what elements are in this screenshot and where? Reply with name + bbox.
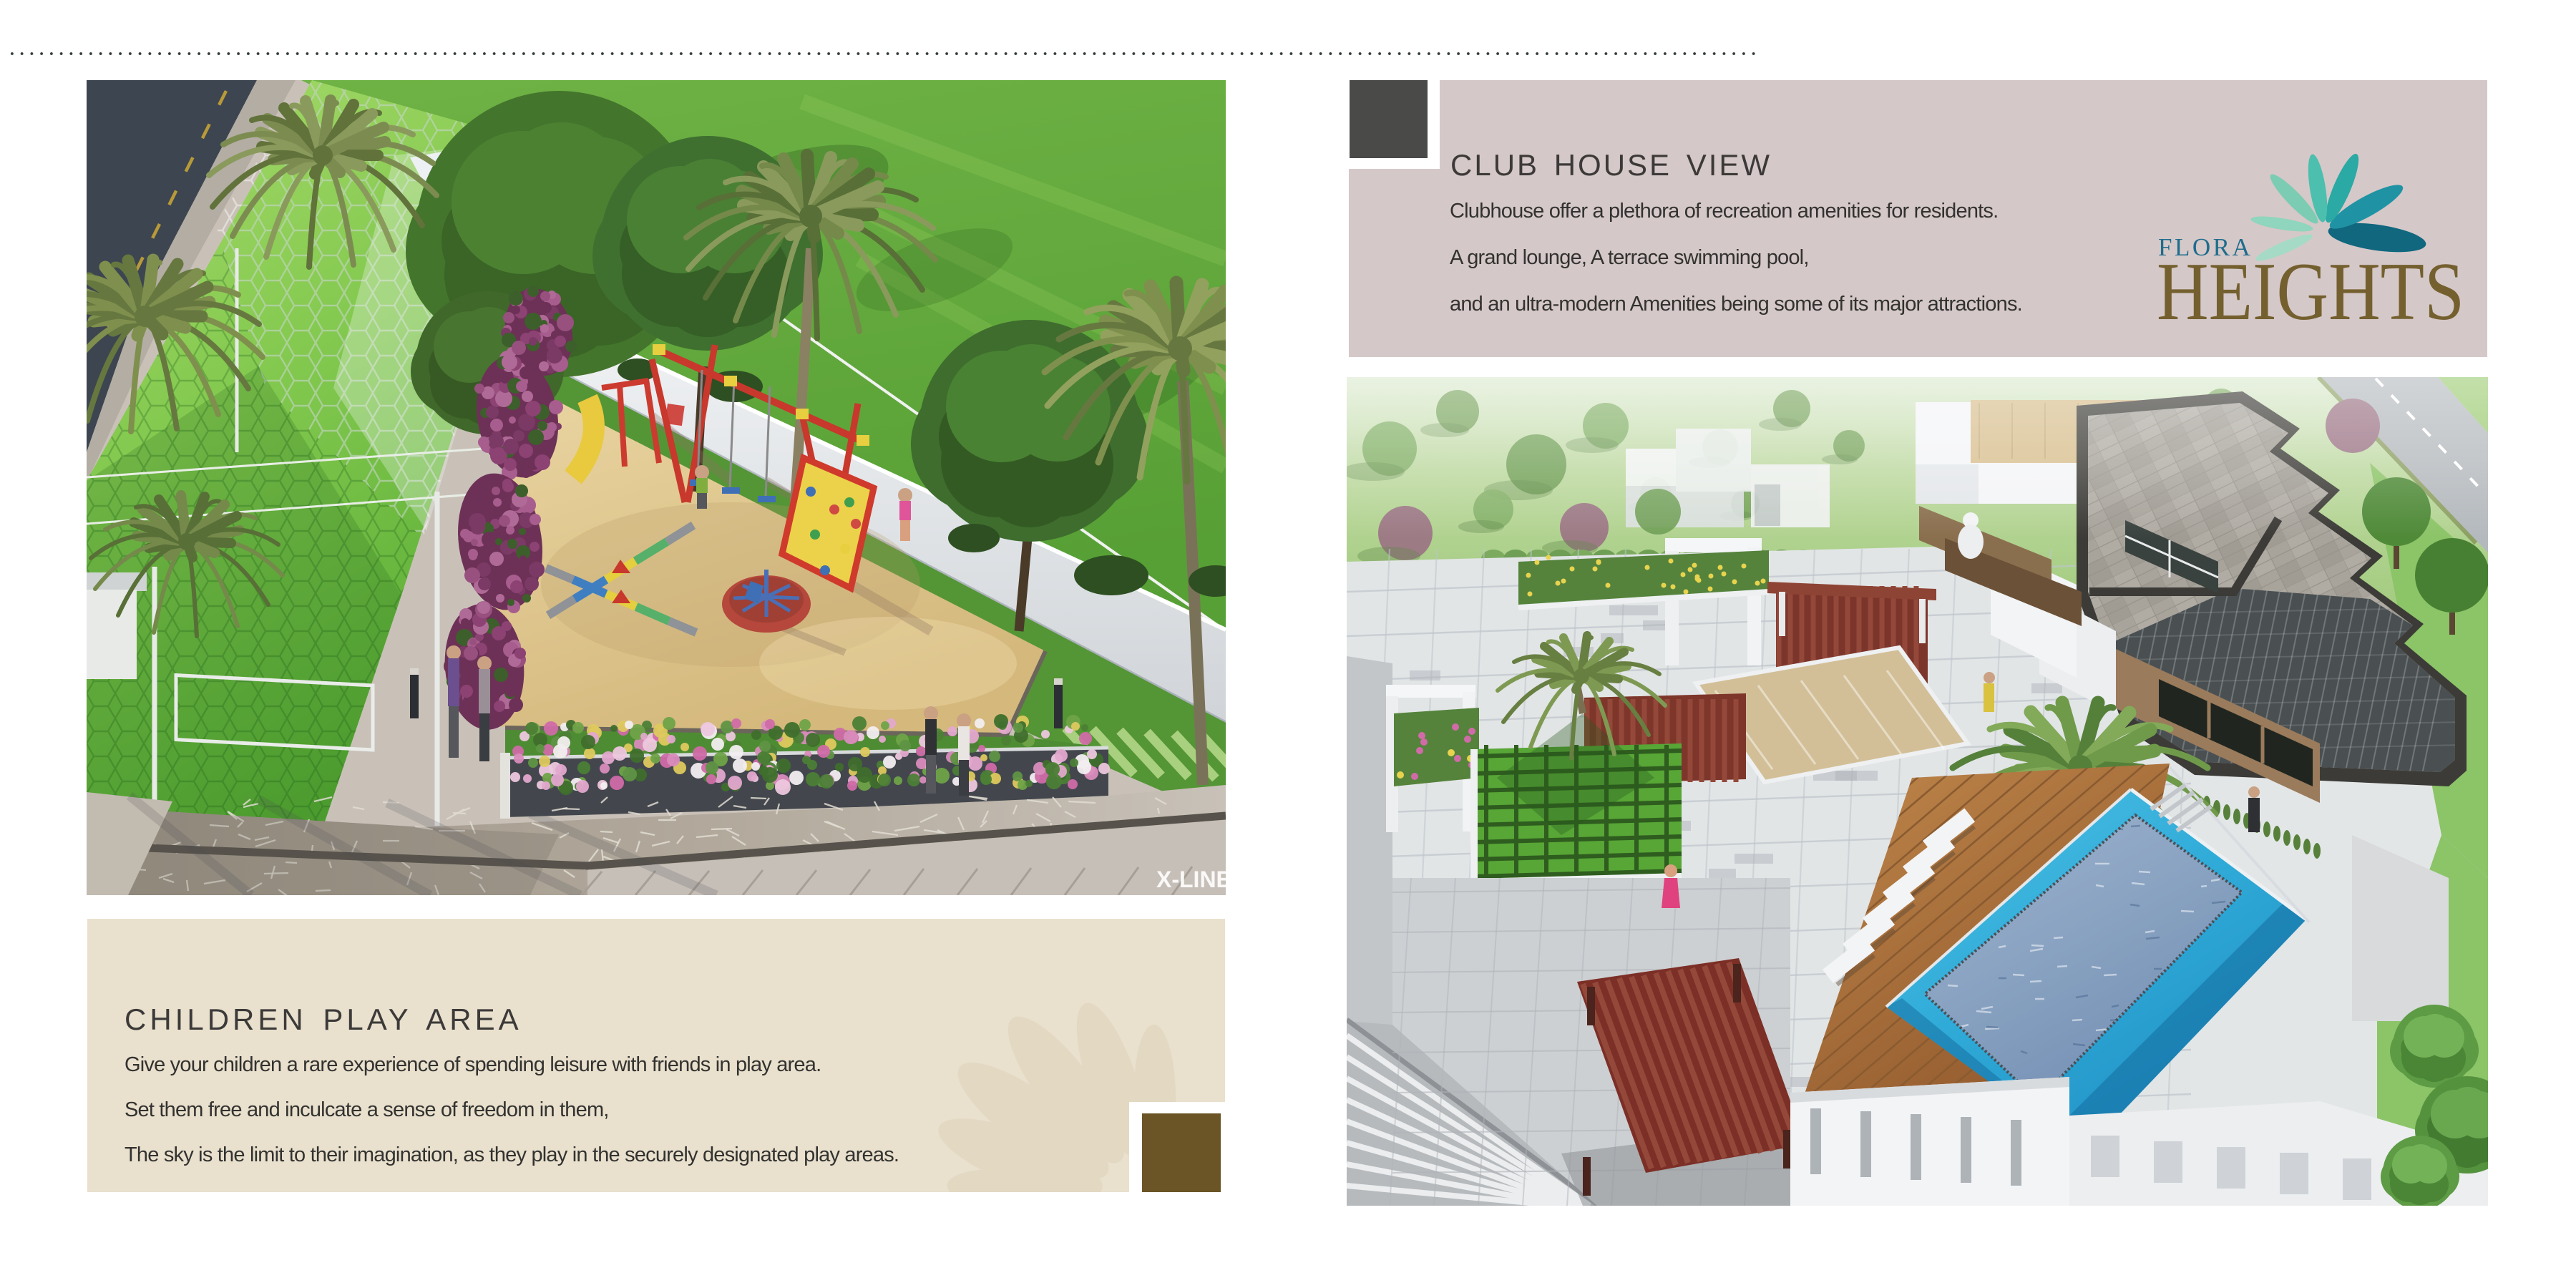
svg-text:X-LINE: X-LINE: [1156, 867, 1226, 892]
svg-text:HEIGHTS: HEIGHTS: [2157, 246, 2464, 333]
